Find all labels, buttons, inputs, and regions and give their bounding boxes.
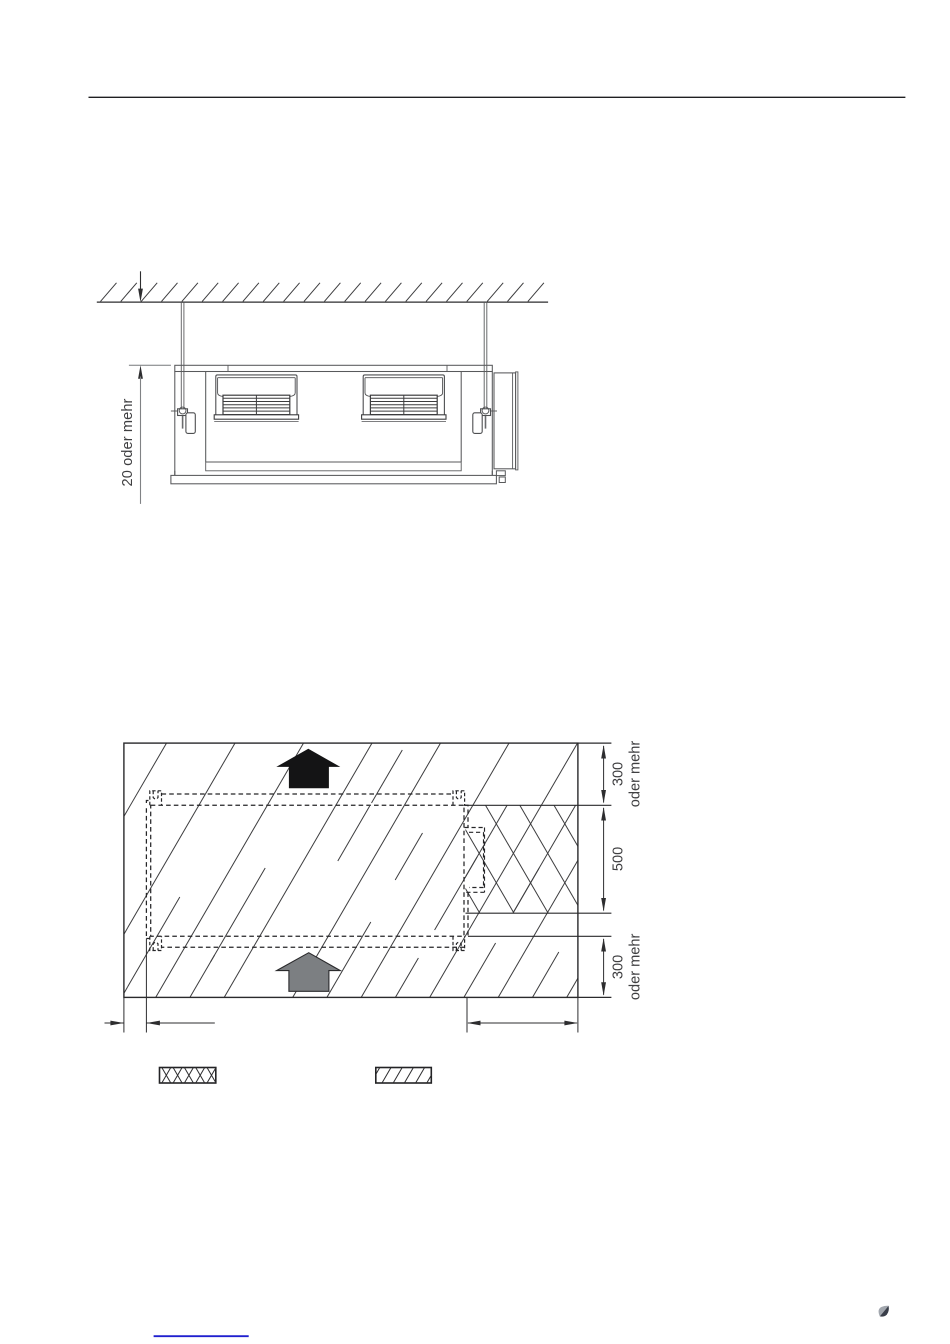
- svg-text:300: 300: [611, 762, 627, 786]
- svg-text:oder mehr: oder mehr: [628, 934, 644, 1001]
- svg-text:20 oder mehr: 20 oder mehr: [120, 398, 136, 486]
- svg-text:500: 500: [611, 847, 627, 871]
- svg-text:oder mehr: oder mehr: [628, 741, 644, 808]
- svg-text:300: 300: [611, 955, 627, 979]
